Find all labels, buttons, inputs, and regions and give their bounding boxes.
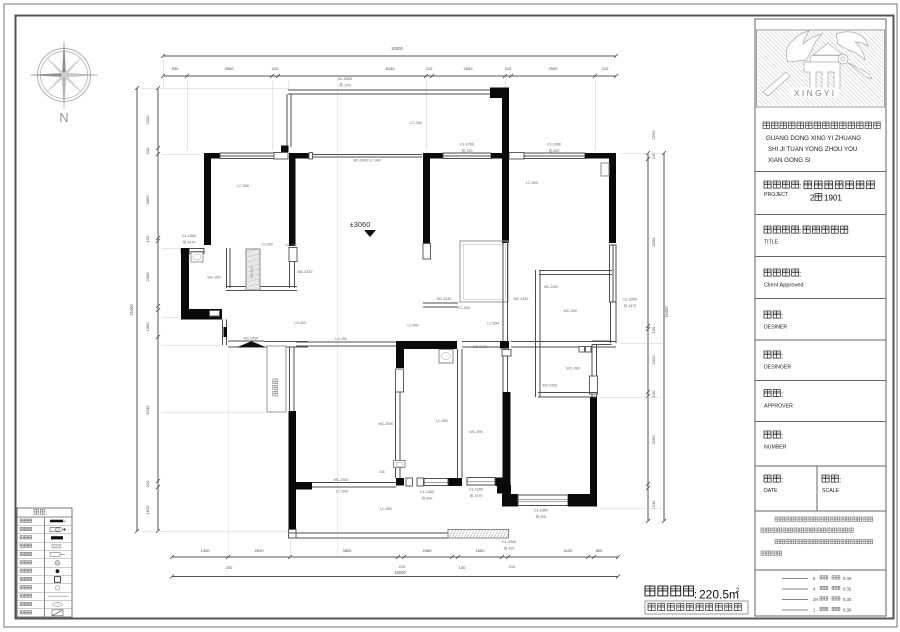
svg-text:TITLE: TITLE bbox=[764, 240, 779, 246]
svg-text:2: 2 bbox=[810, 194, 815, 203]
svg-text::: : bbox=[799, 182, 801, 191]
svg-text::: : bbox=[781, 476, 783, 485]
svg-text::: : bbox=[781, 312, 783, 321]
svg-text:DESINGER: DESINGER bbox=[764, 365, 791, 371]
svg-text:APPROVER: APPROVER bbox=[764, 404, 793, 410]
svg-text:0.30: 0.30 bbox=[843, 597, 852, 602]
svg-text::: : bbox=[799, 227, 801, 236]
svg-text:X I N G Y I: X I N G Y I bbox=[794, 88, 834, 98]
svg-text::: : bbox=[839, 476, 841, 485]
svg-text::: : bbox=[781, 432, 783, 441]
svg-text:1901: 1901 bbox=[824, 194, 842, 203]
svg-text:XIAN GONG SI: XIAN GONG SI bbox=[768, 157, 811, 164]
svg-text:SHI JI TUAN YONG ZHOU YOU: SHI JI TUAN YONG ZHOU YOU bbox=[768, 146, 857, 153]
svg-text:DESINER: DESINER bbox=[764, 325, 787, 331]
svg-text:0.40: 0.40 bbox=[843, 576, 852, 581]
svg-text:2H: 2H bbox=[813, 597, 818, 602]
svg-text:0.30: 0.30 bbox=[843, 608, 852, 613]
svg-text:DATE: DATE bbox=[764, 488, 778, 494]
svg-text:220.5m: 220.5m bbox=[699, 588, 739, 602]
svg-text::: : bbox=[799, 270, 801, 279]
svg-text:PROJECT: PROJECT bbox=[764, 192, 789, 198]
svg-text::: : bbox=[781, 352, 783, 361]
svg-text:0.35: 0.35 bbox=[843, 587, 852, 592]
svg-text:GUANG DONG XING YI ZHUANG: GUANG DONG XING YI ZHUANG bbox=[766, 135, 861, 142]
svg-text::: : bbox=[781, 390, 783, 399]
svg-text:2: 2 bbox=[736, 588, 740, 594]
svg-text:Client Approved: Client Approved bbox=[764, 283, 804, 289]
svg-text::: : bbox=[694, 589, 697, 601]
svg-text:NUMBER: NUMBER bbox=[764, 445, 787, 451]
svg-text:SCALE: SCALE bbox=[822, 488, 840, 494]
